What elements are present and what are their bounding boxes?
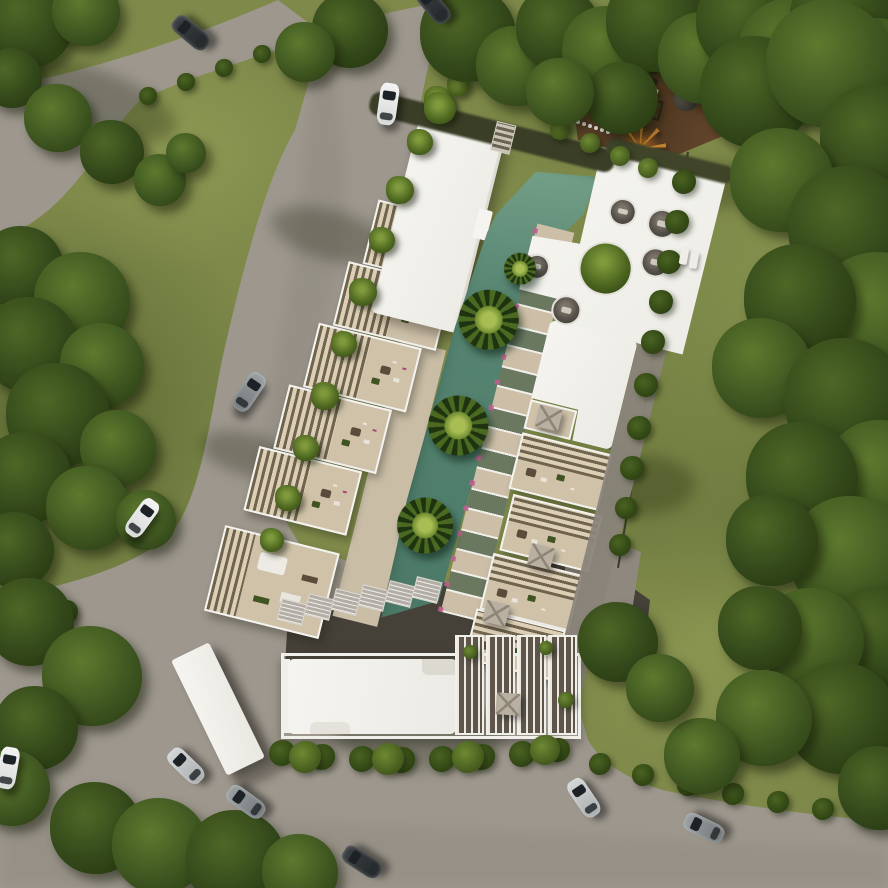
pergola-louver-panel — [455, 635, 484, 735]
play-structure — [616, 91, 664, 121]
lower-building-roof — [288, 659, 456, 734]
aerial-render — [0, 0, 888, 888]
pergola-louver-panel — [517, 635, 546, 735]
pergola-louver-panel — [548, 635, 577, 735]
planter-pot — [673, 85, 699, 111]
pergola-louver-panel — [486, 635, 515, 735]
large-corner-terrace — [204, 525, 340, 639]
